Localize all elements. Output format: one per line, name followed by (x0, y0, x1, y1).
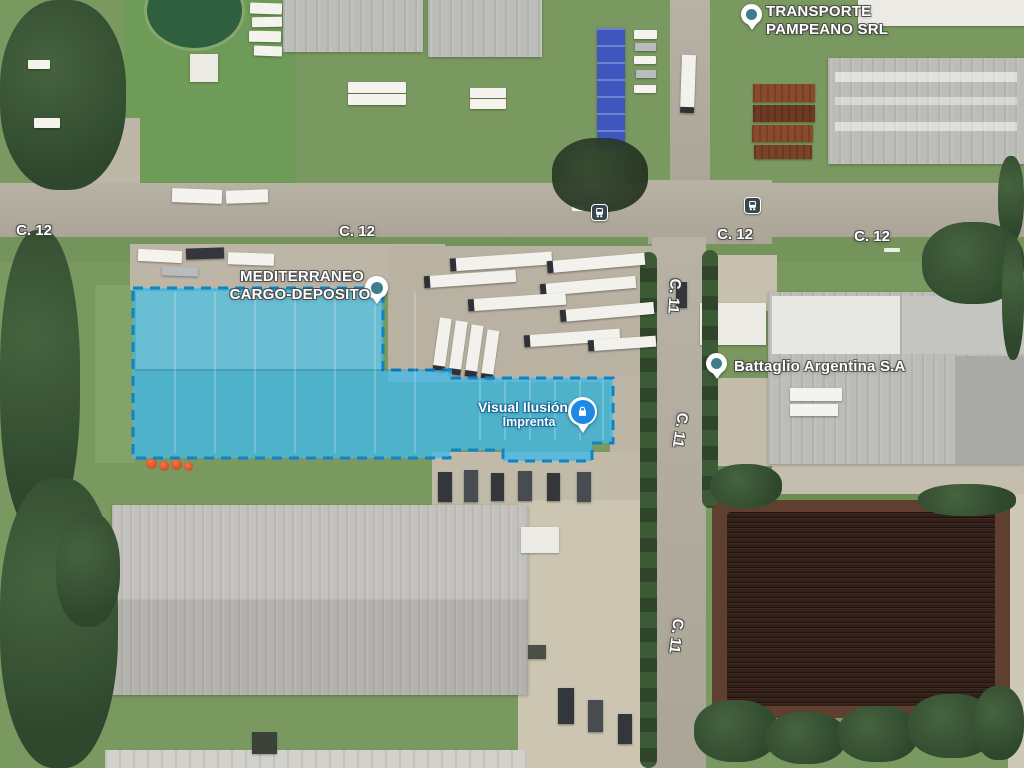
label-mediterraneo-line1[interactable]: MEDITERRANEO (240, 268, 364, 285)
pin-dot (711, 358, 722, 369)
label-mediterraneo-line2[interactable]: CARGO-DEPOSITO (230, 286, 371, 303)
bus-stop-icon[interactable] (591, 204, 608, 221)
bus-glyph (594, 207, 605, 218)
road-label-c12: C. 12 (717, 226, 753, 243)
satellite-map: TRANSPORTE PAMPEANO SRL MEDITERRANEO CAR… (0, 0, 1024, 768)
label-visual-ilusion-line2[interactable]: Imprenta (503, 415, 556, 429)
map-pin-visual-ilusion-lock[interactable] (568, 397, 597, 433)
pin-dot (746, 9, 757, 20)
label-visual-ilusion-line1[interactable]: Visual Ilusión (478, 399, 568, 415)
map-overlay-svg (0, 0, 1024, 768)
pin-tip (747, 23, 757, 30)
map-pin-icon (706, 353, 727, 374)
bus-stop-icon[interactable] (744, 197, 761, 214)
label-battaglio[interactable]: Battaglio Argentina S.A (734, 358, 906, 375)
label-transporte-line2[interactable]: PAMPEANO SRL (766, 21, 888, 38)
road-label-c12: C. 12 (339, 223, 375, 240)
pin-tip (372, 297, 382, 304)
pin-dot (371, 282, 383, 294)
road-label-c12: C. 12 (854, 228, 890, 245)
road-label-c11: C. 11 (664, 278, 683, 314)
pin-tip (577, 424, 589, 433)
map-pin-icon (741, 4, 762, 25)
map-pin-transporte[interactable] (741, 4, 762, 30)
pin-tip (712, 372, 722, 379)
bus-glyph (747, 200, 758, 211)
label-transporte-line1[interactable]: TRANSPORTE (766, 3, 871, 20)
lock-pin-ring (568, 397, 597, 426)
selected-property[interactable] (133, 288, 613, 461)
lock-icon (571, 400, 595, 424)
map-pin-battaglio[interactable] (706, 353, 727, 379)
road-label-c12: C. 12 (16, 222, 52, 239)
